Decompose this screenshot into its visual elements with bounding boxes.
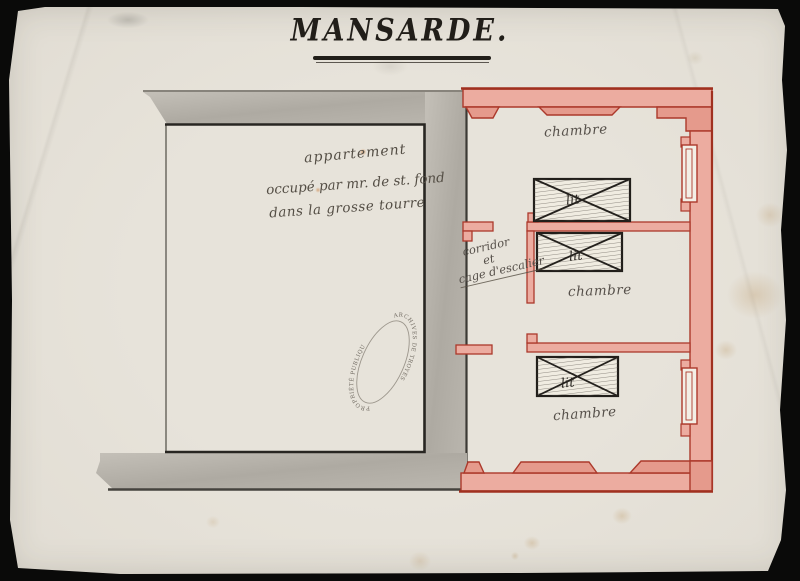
floor-plan-drawing: PROPRIÉTÉ PUBLIQUE ARCHIVES DE TROYES: [0, 0, 800, 581]
bed-1: [534, 179, 630, 221]
stamp-text-top: ARCHIVES DE TROYES: [369, 309, 430, 382]
stamp: PROPRIÉTÉ PUBLIQUE ARCHIVES DE TROYES: [336, 302, 429, 421]
bed-label-3: lit: [560, 375, 575, 391]
gray-wall-top: [143, 91, 467, 124]
partition-2: [456, 334, 690, 354]
room-label-1: chambre: [544, 121, 608, 140]
room-label-2: chambre: [568, 282, 632, 300]
plan-title: MANSARDE.: [0, 13, 800, 49]
title-underline: [313, 56, 491, 60]
scanned-plan: PROPRIÉTÉ PUBLIQUE ARCHIVES DE TROYES MA…: [0, 0, 800, 581]
window-2: [681, 360, 697, 436]
stamp-text-bottom: PROPRIÉTÉ PUBLIQUE: [336, 343, 393, 413]
title-underline-thin: [316, 62, 489, 63]
bed-label-2: lit: [568, 248, 583, 264]
window-1: [681, 137, 697, 211]
gray-wall-bottom: [96, 453, 467, 490]
bed-label-1: lit: [565, 192, 580, 209]
gray-wall-right: [425, 92, 467, 490]
bed-3: [537, 357, 618, 396]
red-wall-bottom: [459, 461, 713, 492]
